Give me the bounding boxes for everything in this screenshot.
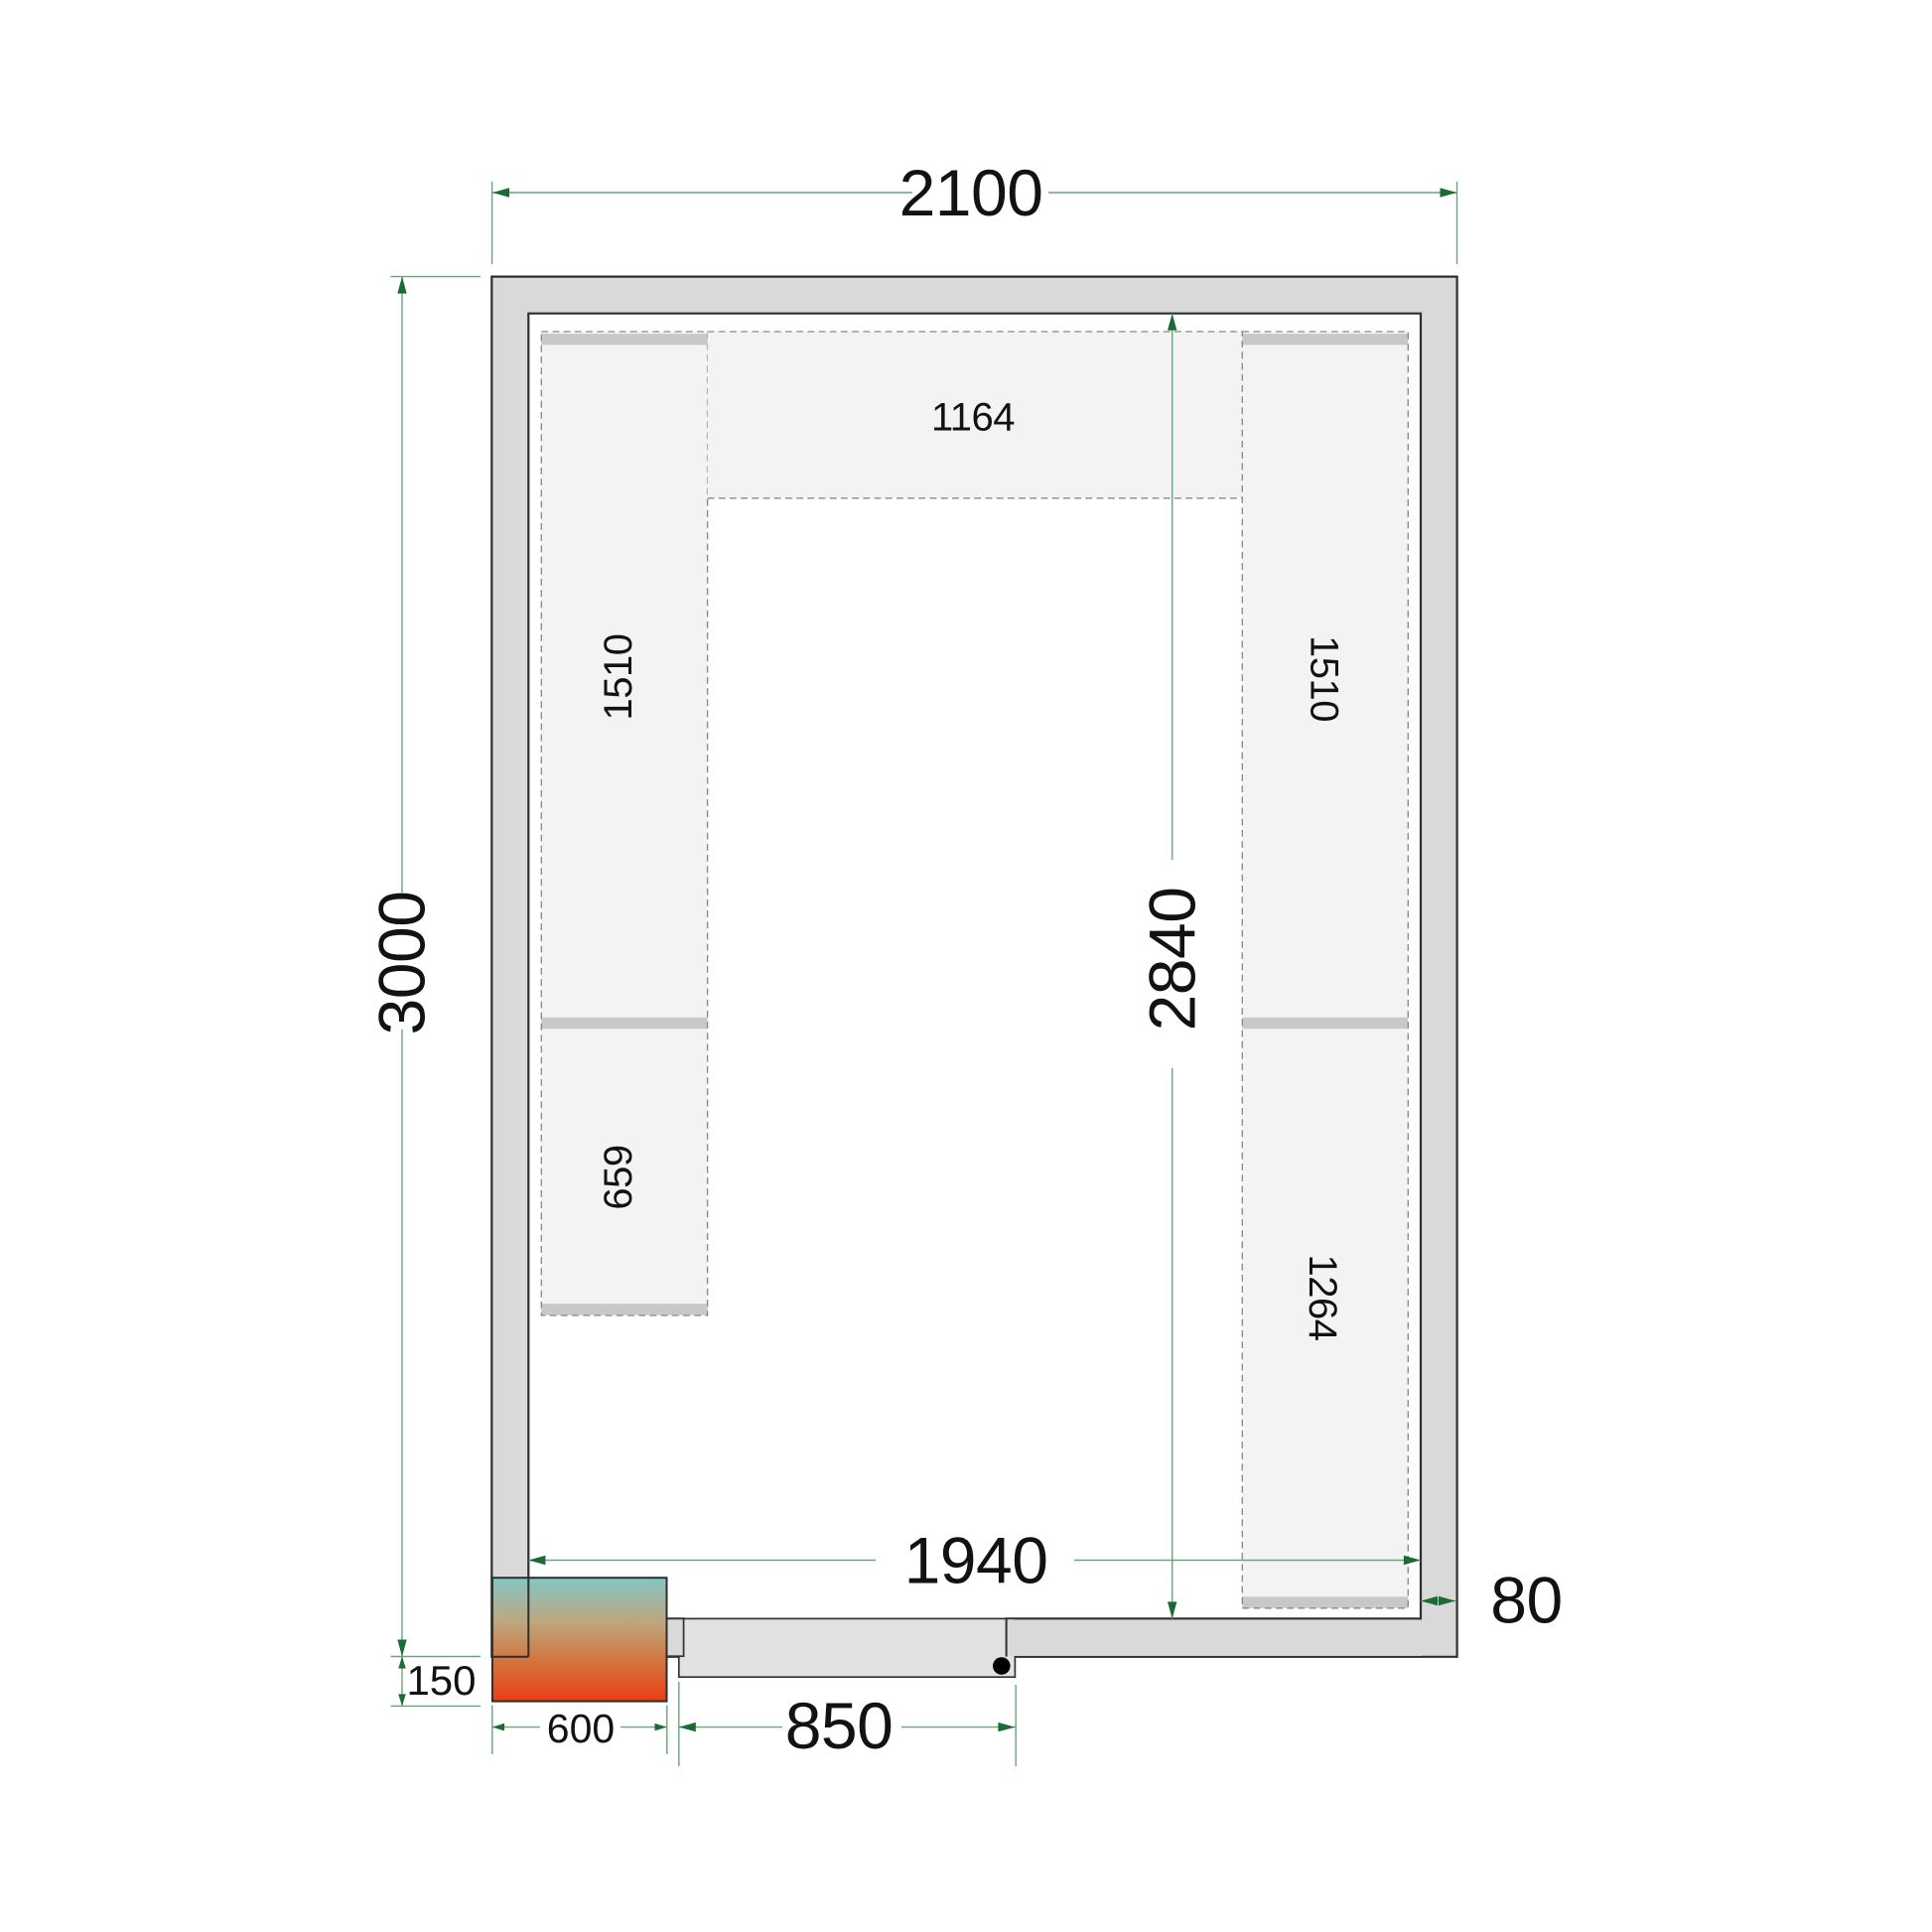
svg-text:1264: 1264 — [1301, 1255, 1344, 1341]
svg-text:1510: 1510 — [597, 634, 640, 721]
svg-text:1164: 1164 — [931, 396, 1015, 440]
svg-text:1940: 1940 — [904, 1524, 1048, 1597]
svg-text:80: 80 — [1490, 1564, 1562, 1637]
svg-text:3000: 3000 — [365, 892, 439, 1035]
svg-text:150: 150 — [406, 1657, 476, 1704]
svg-text:1510: 1510 — [1303, 635, 1346, 722]
svg-text:600: 600 — [547, 1706, 615, 1751]
svg-text:659: 659 — [597, 1145, 640, 1209]
svg-text:2840: 2840 — [1136, 888, 1209, 1032]
svg-text:2100: 2100 — [899, 156, 1043, 229]
svg-text:850: 850 — [785, 1689, 894, 1762]
